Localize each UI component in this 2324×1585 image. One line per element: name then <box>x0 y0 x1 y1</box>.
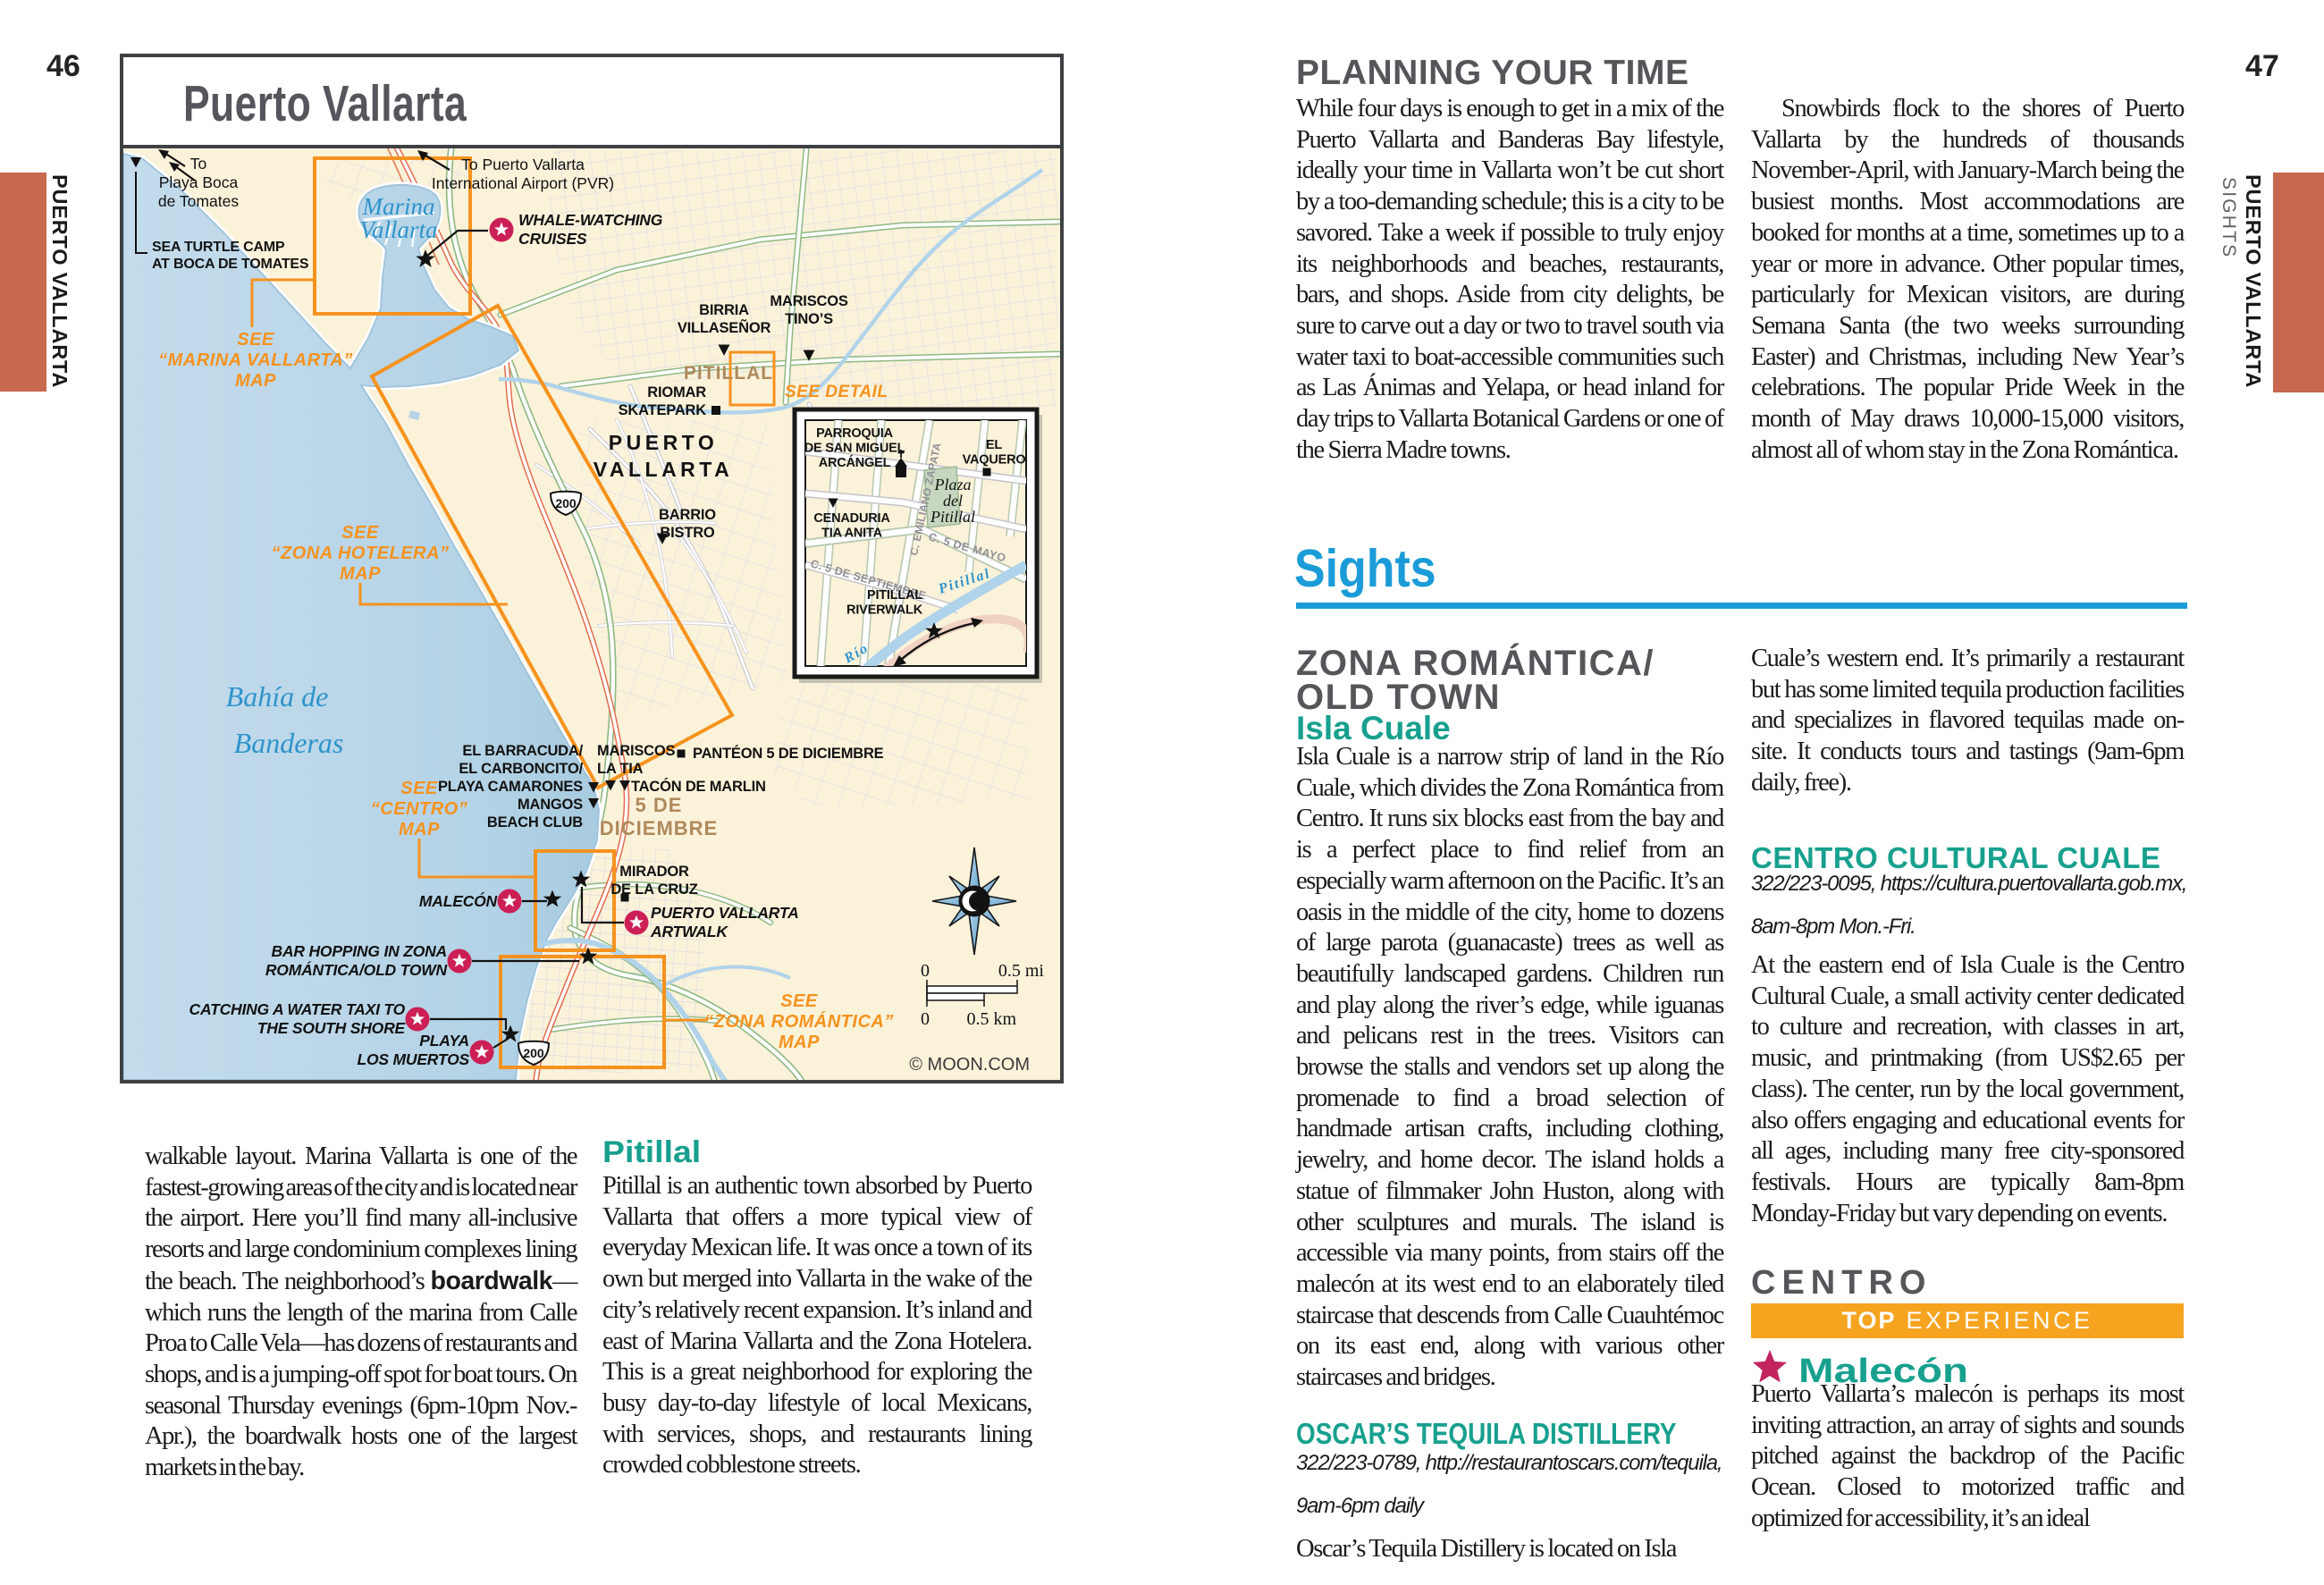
svg-text:Playa Boca: Playa Boca <box>159 173 239 191</box>
svg-text:RIVERWALK: RIVERWALK <box>846 603 923 618</box>
svg-text:MIRADOR: MIRADOR <box>619 864 689 880</box>
svg-text:del: del <box>943 492 963 510</box>
svg-text:CATCHING A WATER TAXI TO: CATCHING A WATER TAXI TO <box>189 1000 406 1018</box>
svg-text:DE SAN MIGUEL: DE SAN MIGUEL <box>804 442 905 456</box>
svg-text:MARISCOS: MARISCOS <box>597 743 676 759</box>
svg-text:200: 200 <box>555 496 577 510</box>
svg-text:“CENTRO”: “CENTRO” <box>371 799 467 819</box>
svg-text:AT BOCA DE TOMATES: AT BOCA DE TOMATES <box>152 257 309 272</box>
svg-text:BEACH CLUB: BEACH CLUB <box>487 814 583 830</box>
svg-text:VALLARTA: VALLARTA <box>594 458 734 481</box>
svg-text:200: 200 <box>523 1046 544 1060</box>
svg-text:LA TIA: LA TIA <box>597 761 644 777</box>
svg-text:PITILLAL: PITILLAL <box>684 363 773 384</box>
svg-text:BAR HOPPING IN ZONA: BAR HOPPING IN ZONA <box>272 942 448 960</box>
svg-text:International Airport (PVR): International Airport (PVR) <box>432 174 614 192</box>
svg-text:CRUISES: CRUISES <box>518 230 587 248</box>
svg-text:Plaza: Plaza <box>933 476 971 493</box>
svg-text:SEE: SEE <box>237 330 274 350</box>
svg-text:To: To <box>190 155 206 173</box>
svg-text:PLAYA: PLAYA <box>419 1032 469 1050</box>
svg-text:PARROQUIA: PARROQUIA <box>816 426 893 441</box>
svg-text:TACÓN DE MARLIN: TACÓN DE MARLIN <box>631 778 766 795</box>
svg-text:MAP: MAP <box>235 371 276 391</box>
svg-text:PLAYA CAMARONES: PLAYA CAMARONES <box>438 779 583 795</box>
svg-text:CENADURIA: CENADURIA <box>813 511 890 526</box>
svg-text:TIA ANITA: TIA ANITA <box>821 527 882 541</box>
svg-text:0: 0 <box>921 961 930 981</box>
svg-text:MAP: MAP <box>779 1033 820 1052</box>
svg-text:SEE DETAIL: SEE DETAIL <box>785 383 888 401</box>
svg-text:SEE: SEE <box>341 523 379 543</box>
svg-text:BIRRIA: BIRRIA <box>699 302 749 318</box>
svg-text:EL CARBONCITO/: EL CARBONCITO/ <box>459 761 583 777</box>
svg-text:Puerto Vallarta: Puerto Vallarta <box>183 75 467 132</box>
svg-text:BARRIO: BARRIO <box>659 507 716 523</box>
svg-text:Pitillal: Pitillal <box>930 508 975 526</box>
svg-text:ARTWALK: ARTWALK <box>650 923 728 940</box>
svg-text:To Puerto Vallarta: To Puerto Vallarta <box>461 156 585 173</box>
svg-text:WHALE-WATCHING: WHALE-WATCHING <box>518 211 663 229</box>
svg-text:SKATEPARK: SKATEPARK <box>619 402 707 418</box>
svg-text:EL BARRACUDA/: EL BARRACUDA/ <box>462 743 583 759</box>
svg-text:SEA TURTLE CAMP: SEA TURTLE CAMP <box>152 240 285 255</box>
svg-text:PUERTO: PUERTO <box>609 431 718 454</box>
svg-text:BISTRO: BISTRO <box>660 525 715 541</box>
svg-text:0: 0 <box>921 1009 930 1029</box>
svg-text:5 DE: 5 DE <box>636 794 683 816</box>
svg-text:ROMÁNTICA/OLD TOWN: ROMÁNTICA/OLD TOWN <box>265 960 448 979</box>
svg-text:SEE: SEE <box>780 991 818 1011</box>
svg-text:de Tomates: de Tomates <box>158 192 239 210</box>
svg-text:PITILLAL: PITILLAL <box>867 588 922 603</box>
svg-text:ARCÁNGEL: ARCÁNGEL <box>819 455 891 470</box>
svg-text:EL: EL <box>986 438 1002 452</box>
svg-text:MARISCOS: MARISCOS <box>770 293 848 309</box>
svg-text:0.5 mi: 0.5 mi <box>998 961 1045 981</box>
svg-text:VILLASEÑOR: VILLASEÑOR <box>678 318 771 336</box>
svg-text:MANGOS: MANGOS <box>518 797 583 813</box>
svg-text:“MARINA VALLARTA”: “MARINA VALLARTA” <box>158 350 353 370</box>
svg-text:MAP: MAP <box>340 564 381 584</box>
svg-text:© MOON.COM: © MOON.COM <box>909 1055 1030 1075</box>
svg-text:“ZONA ROMÁNTICA”: “ZONA ROMÁNTICA” <box>704 1011 894 1032</box>
svg-text:Vallarta: Vallarta <box>359 216 437 243</box>
svg-text:PANTÉON 5 DE DICIEMBRE: PANTÉON 5 DE DICIEMBRE <box>693 745 884 762</box>
svg-text:THE SOUTH SHORE: THE SOUTH SHORE <box>257 1019 407 1037</box>
svg-text:PUERTO VALLARTA: PUERTO VALLARTA <box>651 904 799 922</box>
svg-text:SEE: SEE <box>400 779 438 798</box>
svg-text:RIOMAR: RIOMAR <box>647 384 706 400</box>
svg-text:0.5 km: 0.5 km <box>966 1009 1016 1029</box>
svg-text:LOS MUERTOS: LOS MUERTOS <box>357 1050 469 1068</box>
svg-text:MALECÓN: MALECÓN <box>419 891 498 910</box>
svg-text:Bahía de: Bahía de <box>226 680 329 712</box>
svg-text:VAQUERO: VAQUERO <box>963 453 1026 468</box>
svg-text:Banderas: Banderas <box>234 727 344 759</box>
svg-text:MAP: MAP <box>399 820 440 839</box>
svg-text:DICIEMBRE: DICIEMBRE <box>600 817 718 839</box>
svg-text:“ZONA HOTELERA”: “ZONA HOTELERA” <box>272 544 450 563</box>
svg-text:TINO’S: TINO’S <box>785 311 833 327</box>
